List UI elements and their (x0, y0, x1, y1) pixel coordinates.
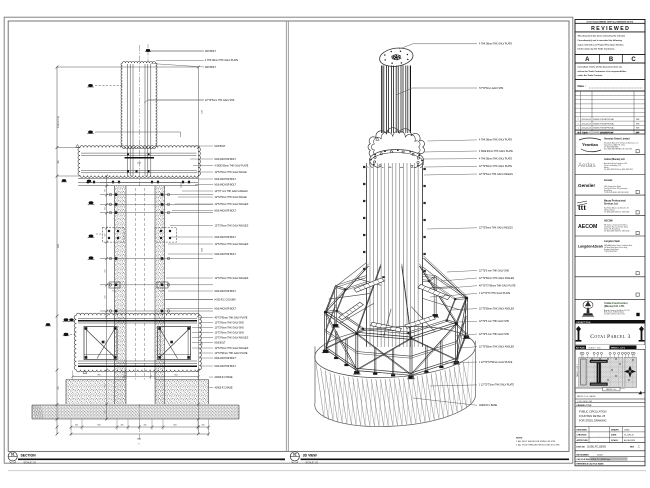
svg-text:DRAWING TITLE: DRAWING TITLE (577, 404, 593, 407)
svg-text:M16 BOLT: M16 BOLT (215, 146, 227, 148)
svg-text:12*T2*6mm THK GALV ANGLES: 12*T2*6mm THK GALV ANGLES (215, 224, 249, 227)
svg-text:2. ALL FILLET WELDED SHOULD BE: 2. ALL FILLET WELDED SHOULD BE 3mm THK. (516, 443, 560, 446)
svg-text:ISSUED FOR APPROVAL: ISSUED FOR APPROVAL (593, 118, 614, 121)
svg-text:DESCRIPTION: DESCRIPTION (600, 132, 614, 134)
svg-text:12*T2* mm THK GALV ANGLES: 12*T2* mm THK GALV ANGLES (215, 190, 249, 193)
svg-text:ISSUED FOR APPROVAL: ISSUED FOR APPROVAL (593, 122, 614, 125)
svg-text:3150B: 3150B (597, 454, 603, 456)
svg-text:12*T2*6mm THK GALV ANGLES: 12*T2*6mm THK GALV ANGLES (215, 277, 249, 280)
svg-text:Hong Kong: Hong Kong (604, 190, 612, 192)
svg-text:Tel: (853) 2882 8888: Tel: (853) 2882 8888 (604, 147, 618, 149)
svg-text:12*T2*6mm THK GALV ANGLES: 12*T2*6mm THK GALV ANGLES (479, 173, 513, 176)
svg-text:DATE: DATE (583, 131, 589, 134)
svg-text:M16 ANCHOR BOLT: M16 ANCHOR BOLT (215, 357, 237, 360)
svg-text:12*T2*90mm THK GALV PLATE: 12*T2*90mm THK GALV PLATE (479, 165, 512, 168)
svg-text:A2900 R.C BASE: A2900 R.C BASE (215, 376, 233, 379)
svg-text:Cotai Parcel 3: Cotai Parcel 3 (590, 334, 630, 340)
svg-text:SCALE 1:5: SCALE 1:5 (306, 461, 319, 464)
svg-text:2015-05-08: 2015-05-08 (582, 128, 591, 130)
svg-text:502: 502 (104, 189, 106, 192)
svg-text:M16 ANCHOR BOLT: M16 ANCHOR BOLT (215, 209, 237, 212)
svg-text:C: C (631, 57, 636, 63)
svg-text:LWKD: LWKD (624, 429, 630, 431)
svg-text:M16 ANCHOR BOLT: M16 ANCHOR BOLT (215, 183, 237, 186)
svg-text:12*T2*6mm THK GALV ANGLE: 12*T2*6mm THK GALV ANGLE (215, 171, 248, 174)
svg-text:5.4 for action by the Trade Co: 5.4 for action by the Trade Contractor. (578, 48, 616, 51)
svg-text:12*T2*6mm THK GALV ANGLES: 12*T2*6mm THK GALV ANGLES (215, 203, 249, 206)
svg-text:M16 ANCHOR BOLT: M16 ANCHOR BOLT (215, 290, 237, 293)
svg-text:FOUNTAIN DETAIL 25: FOUNTAIN DETAIL 25 (579, 414, 606, 418)
svg-text:Aedas: Aedas (578, 162, 596, 169)
svg-text:300: 300 (144, 425, 147, 427)
svg-text:A2900 R.C BASE: A2900 R.C BASE (215, 386, 233, 389)
svg-text:REFERENCE CAD FILE NAME: REFERENCE CAD FILE NAME (577, 463, 605, 466)
svg-text:864: 864 (98, 425, 101, 427)
svg-text:1 12*T2*T2*90mm GALV PLATE: 1 12*T2*T2*90mm GALV PLATE (479, 361, 513, 364)
svg-text:12*T2*90mm THK GALV PLATE: 12*T2*90mm THK GALV PLATE (215, 352, 248, 355)
svg-text:Tel: (853) 2833 1113 Fax: (85: Tel: (853) 2833 1113 Fax: (853) 2833 111… (604, 169, 633, 171)
svg-text:1786 (V.O.S): 1786 (V.O.S) (58, 116, 60, 128)
svg-text:M16 ANCHOR BOLT: M16 ANCHOR BOLT (215, 365, 237, 368)
svg-text:Gensler: Gensler (578, 183, 595, 188)
svg-text:M16 ANCHOR BOLT: M16 ANCHOR BOLT (215, 253, 237, 256)
svg-text:12*T2*6mm THK GALV ANGLES: 12*T2*6mm THK GALV ANGLES (479, 227, 513, 230)
svg-text:502: 502 (104, 296, 106, 299)
svg-text:4605 Lange Kwan Road,: 4605 Lange Kwan Road, (604, 186, 622, 188)
svg-text:300: 300 (202, 425, 205, 427)
svg-text:PUBLIC CIRCULATION: PUBLIC CIRCULATION (579, 410, 607, 414)
svg-text:12*T2*6 mm THK GALV SHS: 12*T2*6 mm THK GALV SHS (479, 269, 509, 272)
svg-text:Date :: Date : (578, 84, 586, 88)
svg-text:Kowloon, Hong Kong: Kowloon, Hong Kong (604, 249, 619, 251)
svg-text:Macau: Macau (604, 167, 609, 169)
svg-text:SCALE 1:5: SCALE 1:5 (24, 461, 37, 464)
svg-text:1 12*T2*T2mm THK GALV PLATE: 1 12*T2*T2mm THK GALV PLATE (479, 384, 514, 387)
svg-text:KEY PLAN: KEY PLAN (576, 346, 585, 349)
svg-text:status referred to in Projec: status referred to in Project Procedure … (578, 43, 625, 46)
svg-text:4 THK 90mm THK GALV PLATE: 4 THK 90mm THK GALV PLATE (205, 59, 238, 62)
svg-text:DATE: DATE (611, 434, 617, 437)
svg-text:DRAWN: DRAWN (611, 428, 619, 431)
svg-text:502: 502 (104, 207, 106, 210)
svg-text:T (852) 2830 3500: T (852) 2830 3500 (604, 251, 617, 253)
svg-text:14-JUN-15: 14-JUN-15 (624, 435, 635, 437)
svg-text:12*T2*90mm THK GALV ANGLES: 12*T2*90mm THK GALV ANGLES (479, 277, 514, 280)
svg-text:4 THK 90mm THK GALV PLATE: 4 THK 90mm THK GALV PLATE (479, 42, 512, 45)
svg-text:A: A (585, 57, 590, 63)
svg-text:2560: 2560 (201, 248, 203, 252)
svg-text:864: 864 (174, 425, 177, 427)
svg-text:12*T2*6mm THK GALV SHS: 12*T2*6mm THK GALV SHS (205, 99, 235, 102)
svg-text:SCALE 1 : 7500: SCALE 1 : 7500 (589, 346, 601, 349)
svg-text:Venetian Orient Limited: Venetian Orient Limited (604, 138, 630, 141)
svg-text:WM: WM (636, 123, 640, 125)
svg-text:12*T2*6 mm THK GALV SHS: 12*T2*6 mm THK GALV SHS (479, 333, 509, 336)
svg-text:4 THK 90mm THK GALV PLATE: 4 THK 90mm THK GALV PLATE (479, 139, 512, 142)
svg-text:T.150: T.150 (160, 291, 164, 293)
svg-text:1 12*T2*T2 THK GALV PLATE: 1 12*T2*T2 THK GALV PLATE (479, 292, 511, 295)
svg-text:SECTION: SECTION (21, 454, 37, 458)
svg-text:T2*T2*6mm GALV SHS: T2*T2*6mm GALV SHS (479, 87, 504, 90)
svg-text:M16 ANCHOR BOLT: M16 ANCHOR BOLT (215, 307, 237, 310)
svg-text:T. 852.2507.0618 F. 852.2507.: T. 852.2507.0618 F. 852.2507.0628 (604, 192, 628, 194)
svg-text:PROJECT TITLE: PROJECT TITLE (577, 322, 592, 324)
svg-text:Consultants(s) and is accorded: Consultants(s) and is accorded the follo… (578, 39, 623, 42)
svg-text:ISSUED FOR APPROVAL: ISSUED FOR APPROVAL (593, 127, 614, 130)
svg-text:12*T2*6mm THK GALV ANGLE: 12*T2*6mm THK GALV ANGLE (215, 196, 248, 199)
svg-text:864: 864 (98, 374, 101, 376)
svg-text:T.150: T.150 (112, 291, 116, 293)
svg-text:M16 BOLT: M16 BOLT (205, 51, 217, 53)
svg-text:3D VIEW: 3D VIEW (303, 454, 318, 458)
svg-text:B: B (609, 57, 614, 63)
svg-text:3150B_PC_B5000: 3150B_PC_B5000 (587, 447, 607, 449)
svg-text:4 THK 90mm THK GALV PLATE: 4 THK 90mm THK GALV PLATE (479, 158, 512, 161)
svg-text:12*T2*6mm THK GALV SHS: 12*T2*6mm THK GALV SHS (215, 326, 245, 329)
svg-text:M16 ANCHOR BOLT: M16 ANCHOR BOLT (215, 178, 237, 181)
svg-text:under the Trade Contract.: under the Trade Contract. (578, 74, 604, 77)
svg-text:40*T2*90mm THK GALV PLATE: 40*T2*90mm THK GALV PLATE (215, 316, 248, 319)
svg-text:Aedas (Macau) Ltd.: Aedas (Macau) Ltd. (604, 158, 625, 161)
svg-text:2015-05-08: 2015-05-08 (582, 119, 591, 121)
svg-text:Langdon Seah: Langdon Seah (604, 241, 620, 243)
svg-text:WM: WM (636, 119, 640, 121)
svg-text:2864: 2864 (137, 439, 141, 441)
svg-text:Services Ltd.: Services Ltd. (604, 203, 619, 206)
svg-text:Two Pacific Place, 88 Queenswa: Two Pacific Place, 88 Queensway (604, 188, 628, 190)
svg-text:12*T2*6mm THK GALV SHS: 12*T2*6mm THK GALV SHS (215, 321, 245, 324)
svg-text:3150B_PC_B5000.dwg: 3150B_PC_B5000.dwg (591, 459, 611, 461)
svg-text:WM: WM (636, 128, 640, 130)
svg-text:AS SHOWN: AS SHOWN (624, 439, 635, 442)
svg-text:12*T2*6mm THK GALV SHS: 12*T2*6mm THK GALV SHS (215, 331, 245, 334)
svg-text:M16 BOLT: M16 BOLT (215, 342, 227, 344)
svg-text:PARCEL 5 & 6 - MACAU: PARCEL 5 & 6 - MACAU (577, 395, 596, 398)
svg-text:CHECKED: CHECKED (577, 435, 587, 437)
svg-text:-: - (12, 458, 13, 461)
svg-text:864: 864 (175, 374, 178, 376)
svg-text:Langdon&Seah: Langdon&Seah (578, 245, 603, 249)
svg-text:Gensler: Gensler (604, 180, 613, 182)
svg-text:AECOM: AECOM (604, 220, 613, 223)
svg-text:DWG NO: DWG NO (577, 447, 586, 449)
svg-text:DESIGNED: DESIGNED (577, 429, 588, 431)
svg-text:1. ALL BOLT SHOULD BE FIXING O: 1. ALL BOLT SHOULD BE FIXING ON SITE. (516, 440, 556, 443)
svg-text:12*T2*6 mm THK GALV SHS: 12*T2*6 mm THK GALV SHS (479, 320, 509, 323)
svg-text:12*T2*90mm THK GALV ANGLES: 12*T2*90mm THK GALV ANGLES (479, 307, 514, 310)
svg-text:300: 300 (121, 425, 124, 427)
svg-text:# 500 R.C COLUMN: # 500 R.C COLUMN (215, 299, 236, 301)
svg-text:REV: REV (630, 447, 635, 449)
svg-text:NOTE:: NOTE: (516, 438, 523, 440)
svg-text:12*T2*6mm THK GALV ANGLES: 12*T2*6mm THK GALV ANGLES (215, 347, 249, 350)
svg-text:300: 300 (75, 425, 78, 427)
svg-text:502: 502 (104, 270, 106, 273)
svg-text:M16 BOLT: M16 BOLT (205, 67, 217, 69)
svg-text:502: 502 (104, 234, 106, 237)
svg-text:M16 ANCHOR BOLT: M16 ANCHOR BOLT (215, 158, 237, 161)
svg-text:4 SIDE 90mm THK GALV PLATE: 4 SIDE 90mm THK GALV PLATE (479, 150, 513, 153)
svg-text:02: 02 (293, 452, 297, 456)
svg-text:FOR STEEL DRAWING: FOR STEEL DRAWING (579, 418, 606, 422)
svg-text:12*T2*6mm THK GALV ANGLES: 12*T2*6mm THK GALV ANGLES (215, 336, 249, 339)
svg-text:(Macau) CO. LTD.: (Macau) CO. LTD. (604, 305, 625, 308)
svg-text:This document has been revised: This document has been revised by the re… (578, 35, 626, 38)
svg-text:2015-05-08: 2015-05-08 (582, 123, 591, 125)
svg-text:PARCEL 1, LOT 2: PARCEL 1, LOT 2 (611, 346, 625, 349)
svg-text:Macau Professional: Macau Professional (604, 201, 626, 203)
svg-text:Tel: (852) 2891 0305 Fax: 289: Tel: (852) 2891 0305 Fax: 2891 0530 (604, 231, 630, 233)
svg-text:A2900 R.C BASE: A2900 R.C BASE (479, 404, 497, 407)
svg-text:BID NUMBER: BID NUMBER (577, 454, 590, 456)
svg-text:Consultant review of this docu: Consultant review of this document does … (578, 66, 623, 69)
svg-text:M16 ANCHOR BOLT: M16 ANCHOR BOLT (215, 236, 237, 239)
svg-text:40*T2*T2*90mm THK GALV PLATE: 40*T2*T2*90mm THK GALV PLATE (479, 285, 516, 288)
svg-text:01: 01 (11, 452, 15, 456)
svg-text:relieve the Trade Contractor o: relieve the Trade Contractor of its resp… (578, 70, 628, 73)
svg-text:AECOM: AECOM (578, 224, 597, 230)
svg-text:SCALE: SCALE (611, 439, 618, 442)
svg-text:Tel: 2871 7234 Fax: 2871 7: Tel: 2871 7234 Fax: 2871 7322 (604, 314, 625, 316)
svg-text:R E V I E W E D: R E V I E W E D (591, 26, 629, 32)
svg-text:4 SIDE 90mm THK GALV PLATE: 4 SIDE 90mm THK GALV PLATE (215, 164, 249, 167)
svg-text:24=U: 24=U (137, 163, 142, 165)
svg-text:APPROVED: APPROVED (577, 439, 589, 442)
svg-text:12*T2*90mm THK GALV ANGLES: 12*T2*90mm THK GALV ANGLES (479, 346, 514, 349)
svg-text:Tel: (853) 2832 3355 Fax: 283: Tel: (853) 2832 3355 Fax: 2832 3356 (604, 212, 630, 214)
svg-text:12*T2*6mm THK GALV ANGLES: 12*T2*6mm THK GALV ANGLES (215, 243, 249, 246)
svg-text:Venetian: Venetian (582, 142, 598, 147)
svg-text:China Law Building, 21/F: China Law Building, 21/F (604, 165, 621, 167)
